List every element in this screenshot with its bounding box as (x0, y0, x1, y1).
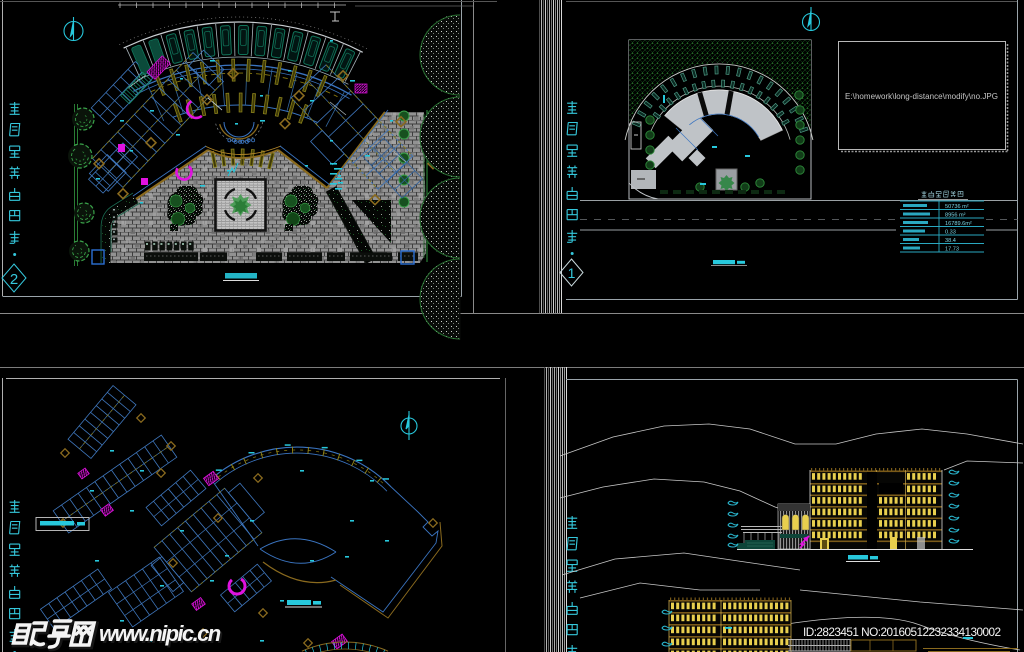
svg-text:17.73: 17.73 (945, 247, 959, 253)
svg-text:E:\homework\long-distance\modi: E:\homework\long-distance\modify\no.JPG (845, 92, 998, 101)
svg-text:www.nipic.cn: www.nipic.cn (99, 621, 221, 646)
svg-text:0.33: 0.33 (945, 230, 956, 236)
svg-text:8956 m²: 8956 m² (945, 213, 966, 219)
svg-text:ID:2823451 NO:2016051223233413: ID:2823451 NO:20160512232334130002 (803, 625, 1001, 639)
svg-text:16789.6m²: 16789.6m² (945, 221, 972, 227)
svg-text:1: 1 (568, 265, 576, 281)
svg-text:50736 m²: 50736 m² (945, 204, 969, 210)
svg-text:2: 2 (10, 271, 18, 288)
svg-text:38.4: 38.4 (945, 238, 956, 244)
